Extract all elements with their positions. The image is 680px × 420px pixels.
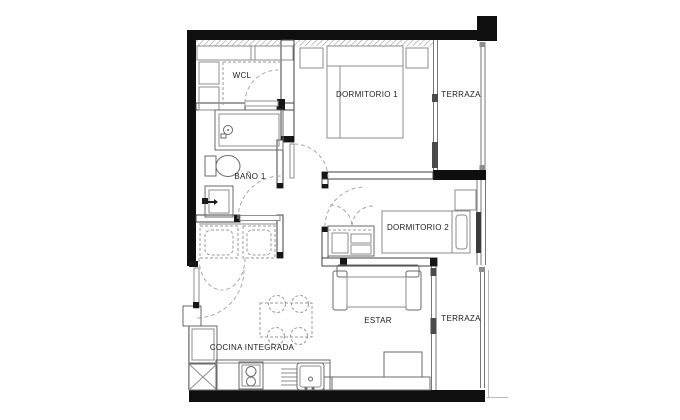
railing-post <box>480 42 486 47</box>
closet-shelf-top <box>197 46 293 60</box>
exterior-wall-top <box>187 30 488 40</box>
kitchen-vent-column <box>183 306 201 326</box>
dorm2-door-swing-arc <box>325 187 365 227</box>
exterior-wall-bottom <box>189 390 485 402</box>
bath-door-leaf <box>240 216 280 221</box>
window-frame-mark <box>431 268 437 276</box>
wall-hatch-band <box>196 40 433 46</box>
label-cocina-integrada: COCINA INTEGRADA <box>210 343 295 352</box>
sink-faucet-dot <box>305 387 308 390</box>
bath-door-swing-arc <box>238 176 281 219</box>
terrace-bottom-envelope <box>431 265 486 390</box>
wardrobe-door-swing-left <box>330 205 352 227</box>
wall-bath-hall <box>277 140 283 188</box>
sink-faucet-dot <box>312 387 315 390</box>
sink-drain <box>309 377 313 381</box>
door-jamb <box>277 252 283 258</box>
room-dormitorio-1 <box>290 46 428 178</box>
wardrobe-door-swing-right <box>352 206 373 227</box>
exterior-wall-top-right-pier <box>477 16 497 41</box>
shower-mixer-icon <box>221 134 226 138</box>
closet-cubby <box>199 62 219 84</box>
dining-table-icon <box>260 296 312 345</box>
side-table-icon <box>384 352 422 377</box>
chair-icon <box>291 328 308 345</box>
entry-jamb <box>189 261 198 267</box>
sliding-door-panel <box>431 318 437 334</box>
faucet-icon <box>202 198 208 204</box>
nightstand-icon <box>406 48 428 68</box>
washer-drum <box>205 230 233 255</box>
label-terraza-top: TERRAZA <box>441 90 481 99</box>
bedroom2-east-wall <box>476 180 486 265</box>
sliding-door-panel <box>432 142 438 168</box>
nightstand-icon <box>455 190 476 210</box>
exterior-wall-terrace-divider <box>433 170 486 180</box>
railing-post <box>480 165 486 170</box>
vent-mark <box>193 302 199 308</box>
door-jamb <box>277 183 283 188</box>
floor-plan-canvas: WCL DORMITORIO 1 TERRAZA BAÑO 1 DORMITOR… <box>0 0 680 420</box>
sofa-icon <box>333 265 421 310</box>
counter-return <box>324 377 332 390</box>
door-jamb <box>322 227 328 232</box>
wcl-door-leaf <box>245 101 278 106</box>
room-dormitorio-2 <box>325 187 476 256</box>
bed-single-icon <box>382 211 470 253</box>
label-terraza-bottom: TERRAZA <box>441 314 481 323</box>
wardrobe-drawer <box>351 245 371 254</box>
washer-icon <box>200 226 238 258</box>
drainboard-icon <box>281 369 297 385</box>
terrace-top-envelope <box>432 40 486 170</box>
chair-icon <box>269 296 286 313</box>
label-estar: ESTAR <box>364 316 392 325</box>
room-bano-1 <box>202 110 283 221</box>
burner-icon <box>246 367 256 377</box>
wardrobe-section <box>332 233 348 253</box>
wall-wcl-bath <box>196 103 245 110</box>
door-jamb <box>430 258 437 266</box>
dorm1-door-leaf <box>290 144 294 178</box>
wall-laundry-hall <box>277 215 283 258</box>
window-frame-mark <box>432 94 438 102</box>
interior-partitions <box>189 40 437 267</box>
wall-dorm1-dorm2 <box>322 172 433 179</box>
wardrobe-drawer <box>351 234 371 243</box>
door-jamb <box>322 172 328 179</box>
kitchen-counter <box>216 360 330 390</box>
window-glazing-bar <box>476 212 481 253</box>
door-jamb <box>234 215 240 222</box>
nightstand-icon <box>300 48 323 68</box>
entry-door-swing-arc <box>196 270 244 318</box>
table-top <box>260 303 312 337</box>
room-estar <box>332 265 430 390</box>
chair-icon <box>268 328 285 345</box>
wardrobe-icon <box>328 205 374 256</box>
stove-inner <box>242 365 260 386</box>
dryer-drum <box>247 230 271 255</box>
burner-icon <box>247 377 256 386</box>
exterior-wall-left <box>187 30 196 266</box>
door-jamb <box>322 184 328 188</box>
label-dormitorio-1: DORMITORIO 1 <box>336 90 398 99</box>
sofa-seat <box>347 277 406 307</box>
label-bano-1: BAÑO 1 <box>234 172 265 181</box>
label-dormitorio-2: DORMITORIO 2 <box>387 223 449 232</box>
laundry-door-swing-left <box>199 258 222 290</box>
sideboard-icon <box>332 377 430 390</box>
bed-pillow <box>456 215 467 249</box>
toilet-tank <box>205 156 216 176</box>
floor-plan-drawing: WCL DORMITORIO 1 TERRAZA BAÑO 1 DORMITOR… <box>0 0 680 420</box>
shower-tray-icon <box>215 110 283 150</box>
label-wcl: WCL <box>233 71 252 80</box>
laundry-closet <box>199 224 277 290</box>
chair-icon <box>292 296 309 313</box>
shower-drain-dot <box>227 129 229 131</box>
railing-post <box>479 267 485 272</box>
